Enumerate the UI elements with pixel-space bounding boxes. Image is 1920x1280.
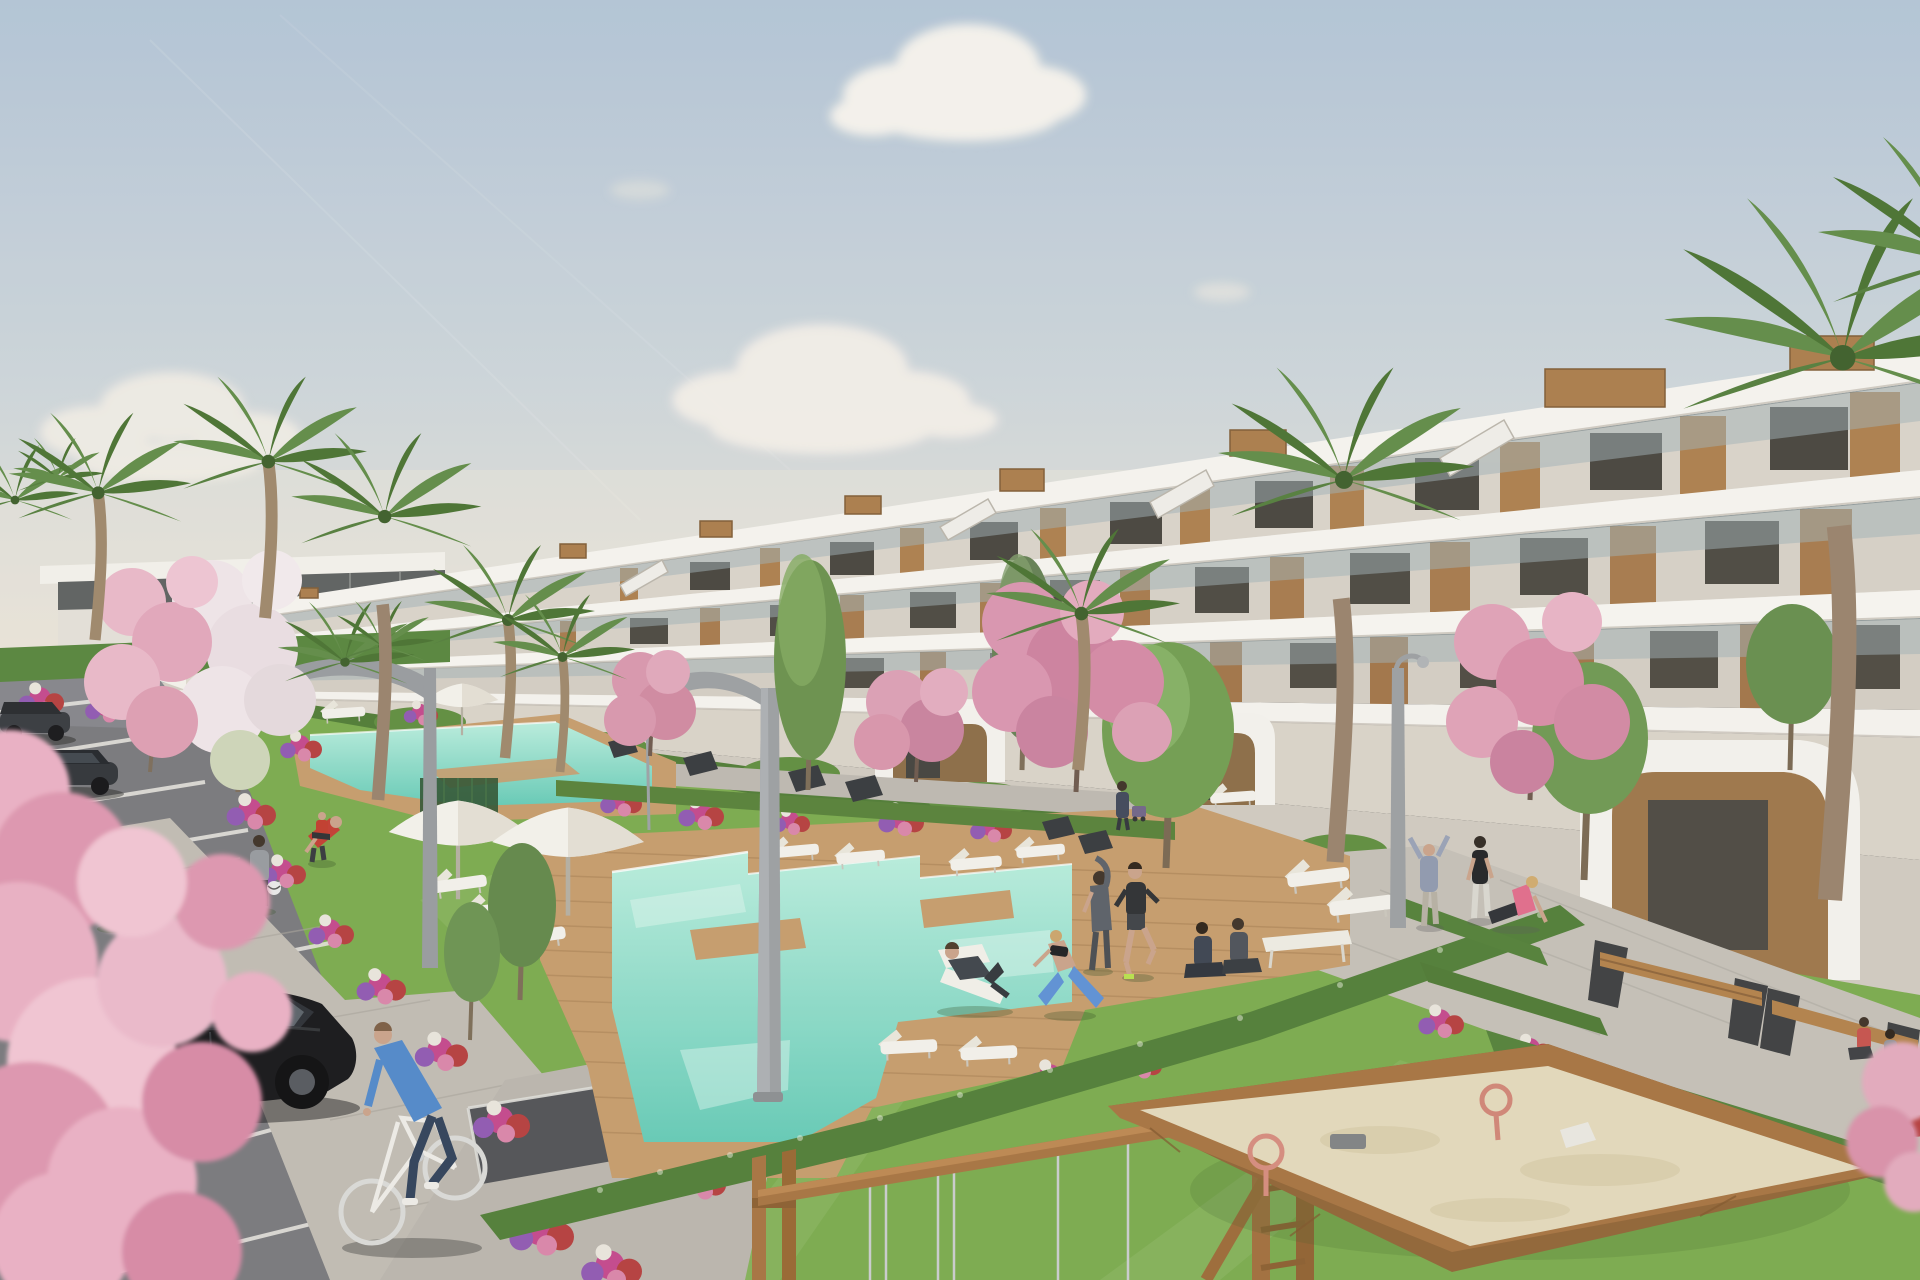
rendered-scene [0,0,1920,1280]
warm-light-overlay [0,0,1920,1280]
